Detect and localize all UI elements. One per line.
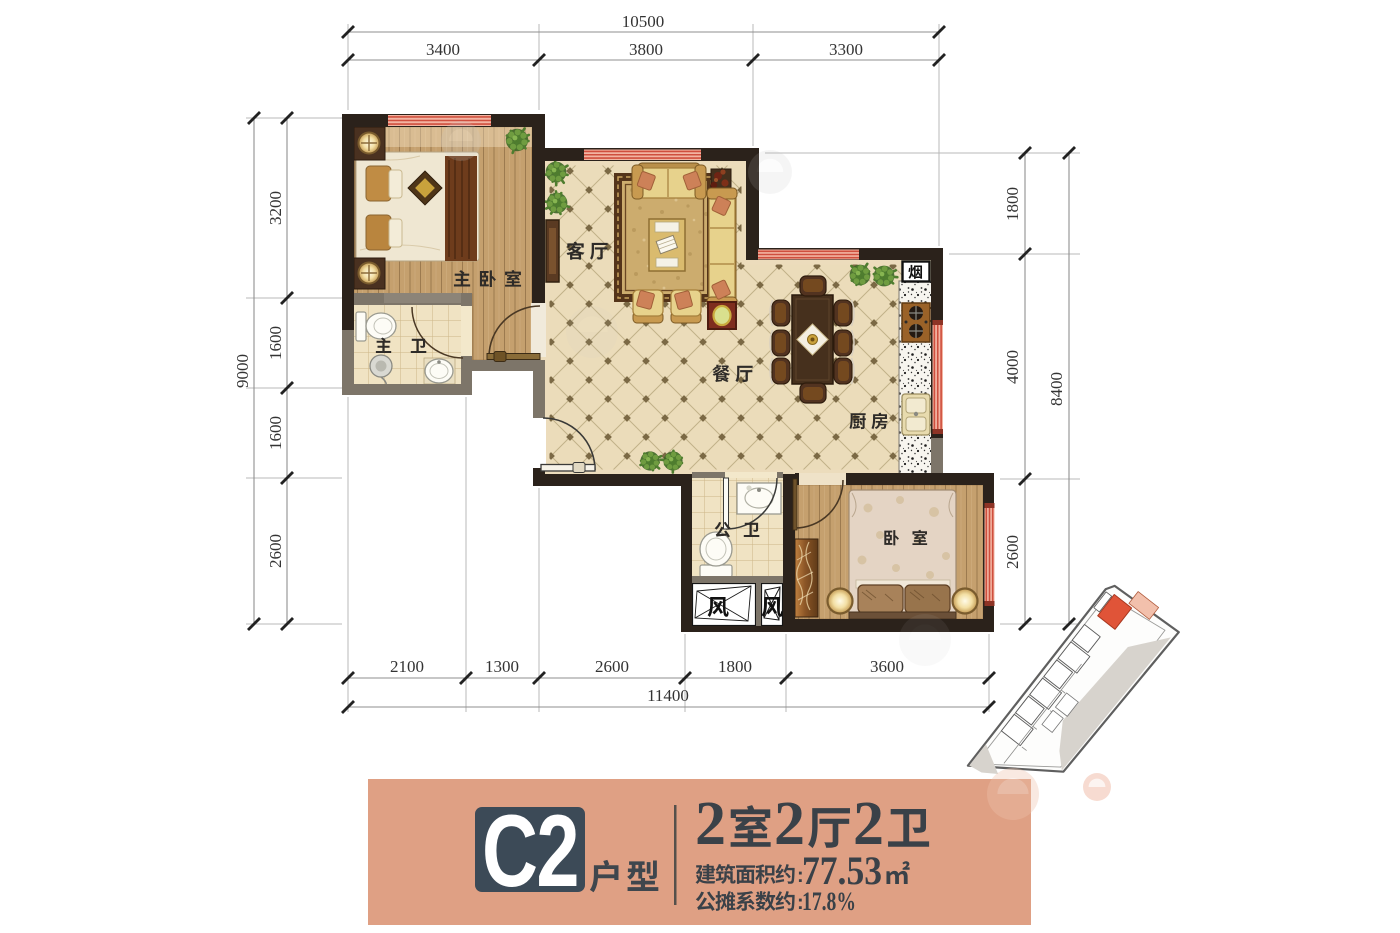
svg-text:2600: 2600: [266, 534, 285, 568]
svg-text:3600: 3600: [870, 657, 904, 676]
svg-text:8400: 8400: [1047, 372, 1066, 406]
svg-text:3800: 3800: [629, 40, 663, 59]
svg-text:C2: C2: [482, 795, 578, 909]
svg-text:3400: 3400: [426, 40, 460, 59]
svg-text:2600: 2600: [1003, 535, 1022, 569]
svg-text:9000: 9000: [233, 354, 252, 388]
svg-text:4000: 4000: [1003, 350, 1022, 384]
svg-text:1600: 1600: [266, 326, 285, 360]
svg-text:3200: 3200: [266, 191, 285, 225]
svg-text:1800: 1800: [1003, 187, 1022, 221]
svg-text:11400: 11400: [647, 686, 689, 705]
svg-text:1600: 1600: [266, 416, 285, 450]
svg-text:3300: 3300: [829, 40, 863, 59]
svg-text:1300: 1300: [485, 657, 519, 676]
svg-text:2600: 2600: [595, 657, 629, 676]
svg-text:1800: 1800: [718, 657, 752, 676]
svg-text:2: 2: [695, 790, 726, 858]
svg-text:10500: 10500: [622, 12, 665, 31]
svg-text:2100: 2100: [390, 657, 424, 676]
svg-text:17.8%: 17.8%: [802, 887, 856, 916]
svg-text:2: 2: [774, 790, 805, 858]
